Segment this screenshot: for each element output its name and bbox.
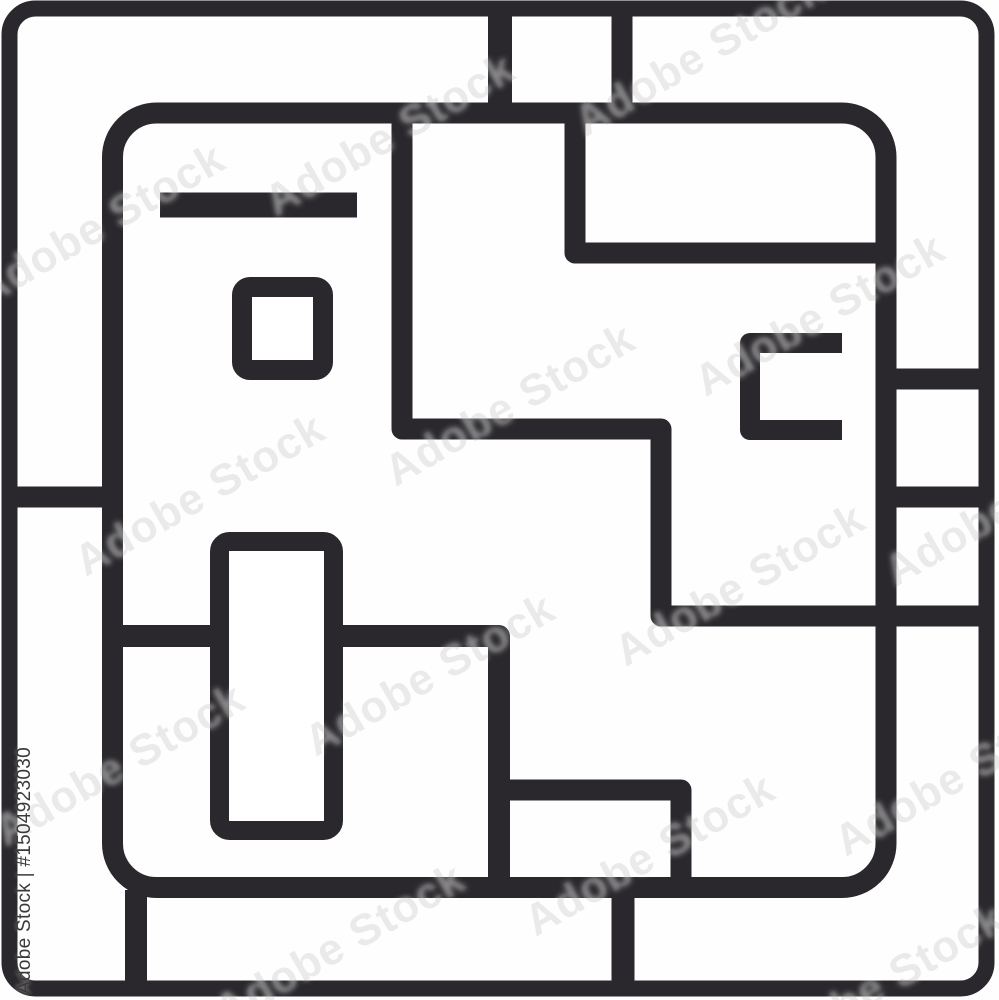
small-square [242,287,323,370]
stock-image-canvas: Adobe Stock Adobe Stock Adobe Stock Adob… [0,0,999,1000]
bracket-shape [750,343,842,430]
bottom-room-wall [499,790,681,886]
upper-right-room-wall [575,116,884,253]
maze-icon [0,0,999,1000]
tall-rectangle [220,542,334,831]
